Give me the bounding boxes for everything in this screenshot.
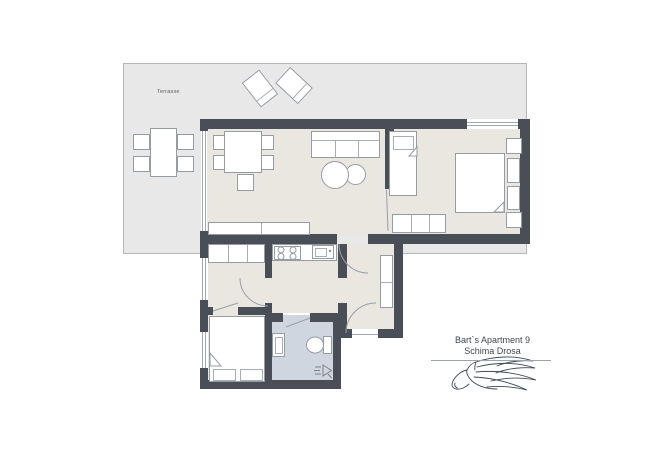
sideboard — [208, 222, 310, 235]
wardrobe-divider — [411, 215, 412, 232]
wall — [200, 119, 208, 131]
window-pane-line — [202, 332, 203, 368]
small-bedroom-door-threshold — [213, 307, 238, 315]
wall — [265, 315, 272, 389]
wall — [378, 329, 403, 338]
terrace-chair — [177, 134, 194, 150]
wall-shelf — [507, 186, 520, 210]
wall — [272, 313, 283, 322]
wardrobe-divider — [429, 215, 430, 232]
wall — [200, 244, 208, 258]
wall-shelf — [507, 158, 520, 183]
small-bedroom-double-bed — [209, 316, 265, 382]
wall — [200, 300, 208, 317]
cabinet-divider — [381, 282, 392, 283]
dining-chair — [237, 174, 254, 191]
terrace-label: Terrasse — [157, 89, 180, 95]
pillow — [393, 136, 414, 150]
brand-divider — [431, 360, 551, 361]
nightstand — [506, 212, 522, 228]
wardrobe — [392, 214, 446, 233]
wall — [333, 317, 341, 389]
lounger-footrest-line — [293, 83, 307, 98]
hallway-cabinet — [380, 255, 393, 308]
terrace-chair — [133, 156, 150, 172]
entry-door-opening — [352, 330, 378, 338]
window-pane-line — [467, 125, 518, 126]
window-pane-line — [467, 122, 518, 123]
window-pane-line — [205, 258, 206, 300]
sofa — [311, 131, 380, 158]
bedroom-window — [467, 119, 518, 129]
pillow — [213, 369, 236, 381]
apartment-subtitle: Schima Drosa — [420, 346, 565, 356]
wall — [368, 234, 530, 244]
dining-table — [224, 131, 262, 173]
stove — [274, 246, 301, 260]
bathroom-sink — [272, 333, 285, 357]
kitchen-sink — [312, 245, 334, 259]
dining-chair — [261, 155, 274, 170]
terrace-dining-table — [150, 128, 177, 177]
sofa-cushion-line — [335, 140, 336, 157]
terrace-chair — [177, 156, 194, 172]
wall — [338, 244, 347, 278]
small-bedroom-window — [201, 332, 207, 368]
sink-basin — [315, 248, 327, 257]
terrace-chair — [133, 134, 150, 150]
horse-logo — [452, 357, 536, 390]
sideboard-divider — [261, 223, 262, 234]
nightstand — [506, 138, 522, 154]
anteroom-cabinets — [208, 244, 265, 263]
window-pane-line — [202, 131, 203, 231]
sofa-cushion-line — [358, 140, 359, 157]
window-pane-line — [202, 258, 203, 300]
wall — [208, 307, 213, 315]
anteroom-window — [201, 258, 207, 300]
apartment-title: Bart`s Apartment 9 — [420, 335, 565, 345]
sofa-back-line — [312, 140, 379, 141]
floor-plan: Terrasse — [0, 0, 650, 450]
wall — [200, 119, 467, 129]
window-pane-line — [205, 131, 206, 231]
wall — [200, 317, 208, 332]
threshold-line — [352, 334, 378, 335]
double-bed — [455, 153, 505, 213]
cabinet-divider — [228, 245, 229, 262]
pillow — [240, 369, 263, 381]
coffee-table-large — [321, 161, 349, 189]
cabinet-divider — [247, 245, 248, 262]
single-bed — [389, 131, 417, 196]
terrace-glass-front — [201, 131, 207, 231]
wall — [238, 307, 265, 315]
wall — [265, 242, 272, 278]
kitchen-hall-passage — [338, 278, 347, 303]
window-pane-line — [205, 332, 206, 368]
sink-basin — [275, 337, 283, 354]
wall — [394, 244, 403, 338]
dining-chair — [261, 135, 274, 150]
lounger-footrest-line — [257, 88, 273, 101]
